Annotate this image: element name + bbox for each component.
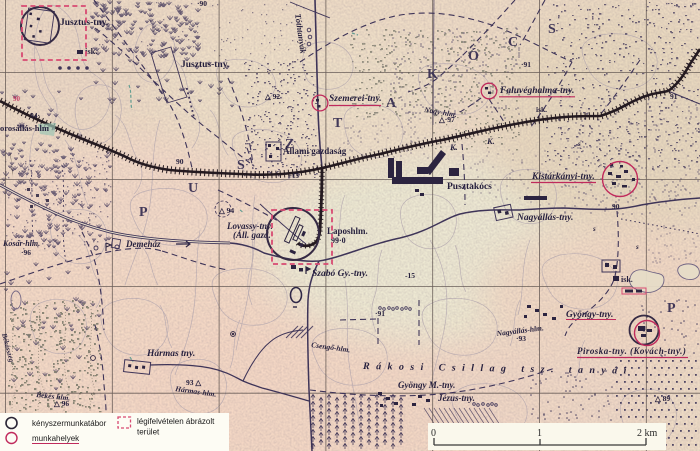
svg-text:S: S	[237, 158, 245, 173]
svg-text:Pusztakócs: Pusztakócs	[447, 182, 492, 192]
svg-text:·91: ·91	[375, 309, 385, 318]
svg-text:Kosár-hlm.: Kosár-hlm.	[2, 239, 40, 248]
svg-text:kényszermunkatábor: kényszermunkatábor	[32, 419, 107, 428]
svg-text:99·0: 99·0	[331, 236, 346, 245]
svg-text:orosállás-hlm: orosállás-hlm	[0, 123, 49, 133]
svg-text:·90: ·90	[197, 0, 207, 8]
svg-text:94·: 94·	[30, 111, 40, 120]
svg-text:△ 96: △ 96	[53, 399, 69, 408]
svg-text:S: S	[548, 22, 556, 37]
svg-text:Jézus-tny.: Jézus-tny.	[437, 393, 475, 403]
svg-text:K.: K.	[449, 142, 458, 152]
svg-text:0: 0	[431, 428, 436, 439]
svg-text:△·97: △·97	[438, 115, 455, 124]
svg-text:91: 91	[670, 92, 678, 101]
svg-text:Ó: Ó	[468, 47, 479, 64]
svg-text:K.: K.	[486, 136, 495, 146]
svg-text:△ 94: △ 94	[218, 206, 234, 215]
svg-text:Állami gazdaság: Állami gazdaság	[283, 146, 347, 156]
svg-text:Demeház: Demeház	[125, 239, 161, 249]
svg-text:Gyöngy-tny.: Gyöngy-tny.	[566, 310, 613, 320]
svg-text:Kistárkányi-tny.: Kistárkányi-tny.	[531, 172, 595, 182]
svg-text:1: 1	[537, 428, 542, 439]
svg-text:P: P	[667, 301, 676, 316]
svg-text:90: 90	[612, 202, 620, 211]
svg-text:K: K	[427, 67, 438, 82]
svg-text:·93: ·93	[516, 334, 526, 343]
svg-text:isk.: isk.	[536, 105, 547, 114]
svg-text:terület: terület	[137, 428, 160, 437]
svg-text:P: P	[139, 205, 148, 220]
svg-text:Piroska-tny. (Kovách-tny.): Piroska-tny. (Kovách-tny.)	[577, 346, 686, 356]
svg-text:Szemerei-tny.: Szemerei-tny.	[329, 94, 382, 104]
svg-text:Jusztus-tny.: Jusztus-tny.	[181, 60, 229, 70]
svg-text:△ 92: △ 92	[264, 92, 280, 101]
svg-text:Jusztus-tny.: Jusztus-tny.	[60, 18, 108, 28]
svg-text:s: s	[592, 225, 596, 233]
svg-text:90: 90	[13, 95, 21, 103]
svg-text:Nagyállás-tny.: Nagyállás-tny.	[516, 213, 573, 223]
svg-text:2 km: 2 km	[637, 428, 658, 439]
svg-text:Faluvéghalma-tny.: Faluvéghalma-tny.	[499, 86, 574, 96]
svg-text:(Áll. gazd.: (Áll. gazd.	[233, 230, 271, 240]
svg-text:T: T	[333, 116, 343, 131]
svg-text:·91: ·91	[521, 60, 531, 69]
svg-text:Szabó Gy.-tny.: Szabó Gy.-tny.	[312, 269, 368, 279]
svg-text:-15: -15	[405, 271, 415, 280]
svg-text:U: U	[188, 181, 198, 196]
svg-text:+15: +15	[288, 172, 299, 180]
svg-text:A: A	[386, 96, 397, 111]
svg-text:Hármas tny.: Hármas tny.	[146, 349, 195, 359]
svg-text:·96: ·96	[21, 248, 31, 257]
svg-text:Gyöngy M.-tny.: Gyöngy M.-tny.	[398, 380, 455, 390]
svg-text:munkahelyek: munkahelyek	[32, 434, 80, 443]
svg-text:C: C	[508, 35, 518, 50]
svg-text:légifelvételen ábrázolt: légifelvételen ábrázolt	[137, 417, 215, 426]
svg-text:s: s	[635, 243, 639, 251]
svg-text:isk.: isk.	[621, 275, 633, 284]
svg-text:Laposhlm.: Laposhlm.	[327, 226, 368, 236]
svg-text:90: 90	[176, 157, 184, 166]
svg-text:s: s	[577, 140, 581, 148]
svg-text:△ 89: △ 89	[654, 394, 670, 403]
